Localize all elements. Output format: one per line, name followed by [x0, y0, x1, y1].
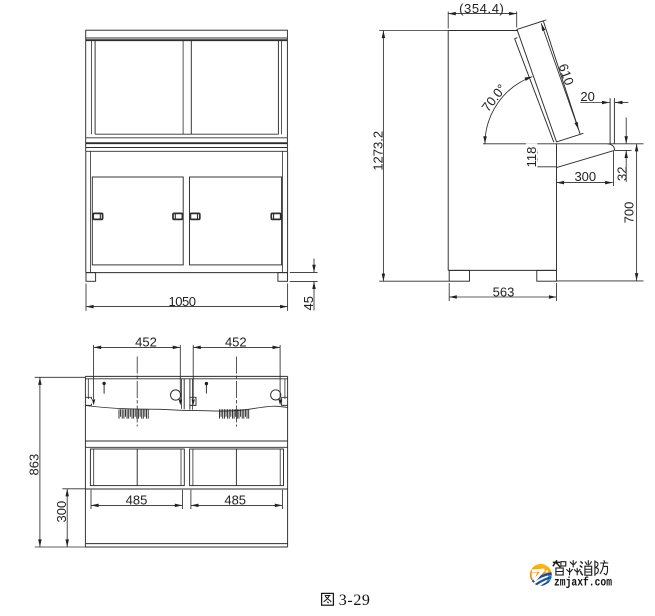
svg-text:485: 485 [126, 492, 148, 507]
svg-text:20: 20 [580, 89, 594, 104]
svg-text:1050: 1050 [169, 294, 196, 309]
svg-text:3-29: 3-29 [339, 592, 371, 609]
svg-text:118: 118 [524, 147, 539, 168]
svg-text:zmjaxf.com: zmjaxf.com [554, 576, 612, 589]
svg-text:485: 485 [224, 492, 246, 507]
svg-text:300: 300 [574, 169, 596, 184]
svg-text:863: 863 [27, 454, 42, 476]
svg-text:452: 452 [225, 335, 247, 350]
svg-text:1273.2: 1273.2 [371, 131, 386, 171]
svg-text:45: 45 [301, 296, 316, 310]
svg-text:610: 610 [556, 62, 577, 87]
svg-text:(354.4): (354.4) [459, 1, 504, 16]
svg-text:563: 563 [493, 284, 515, 299]
svg-text:300: 300 [54, 501, 69, 523]
svg-text:452: 452 [135, 335, 157, 350]
svg-text:700: 700 [622, 202, 637, 224]
svg-text:32: 32 [615, 167, 630, 181]
